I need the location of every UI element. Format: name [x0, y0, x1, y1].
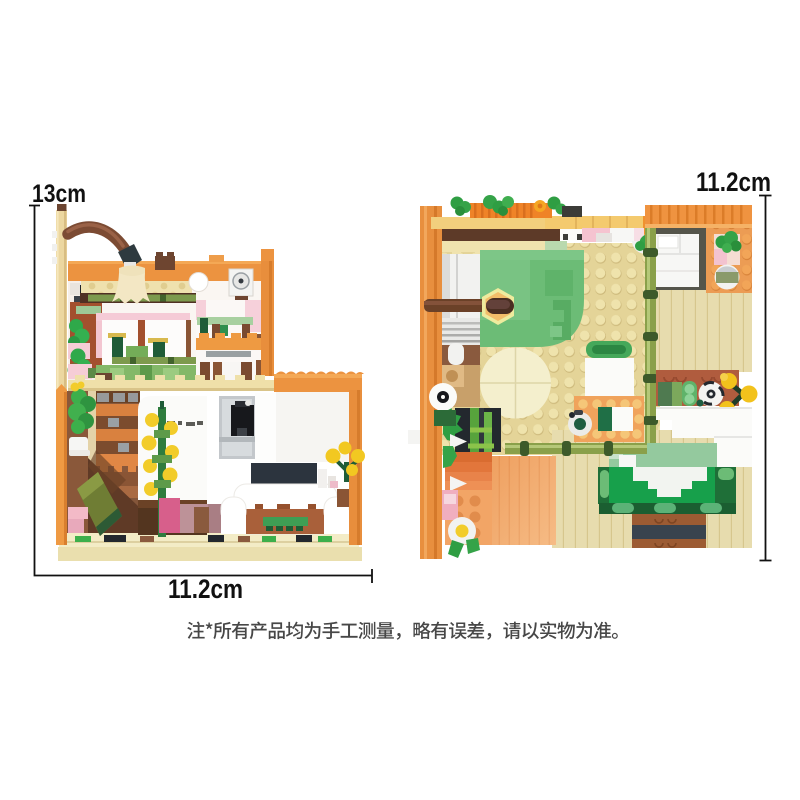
- svg-text:11.2cm: 11.2cm: [696, 167, 771, 197]
- svg-text:13cm: 13cm: [32, 180, 86, 208]
- svg-text:11.2cm: 11.2cm: [168, 574, 243, 604]
